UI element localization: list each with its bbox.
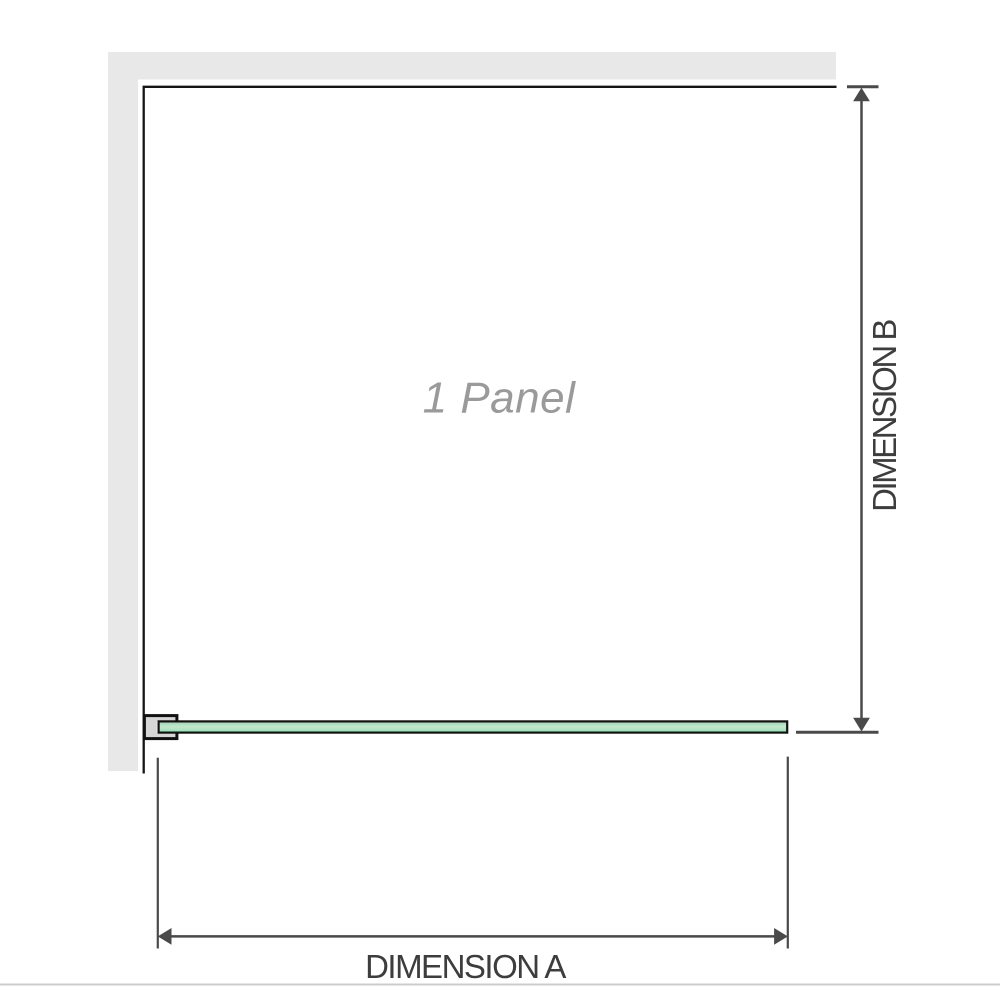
svg-text:DIMENSION A: DIMENSION A bbox=[365, 948, 566, 985]
svg-text:1 Panel: 1 Panel bbox=[423, 374, 576, 423]
svg-text:DIMENSION B: DIMENSION B bbox=[866, 320, 903, 512]
